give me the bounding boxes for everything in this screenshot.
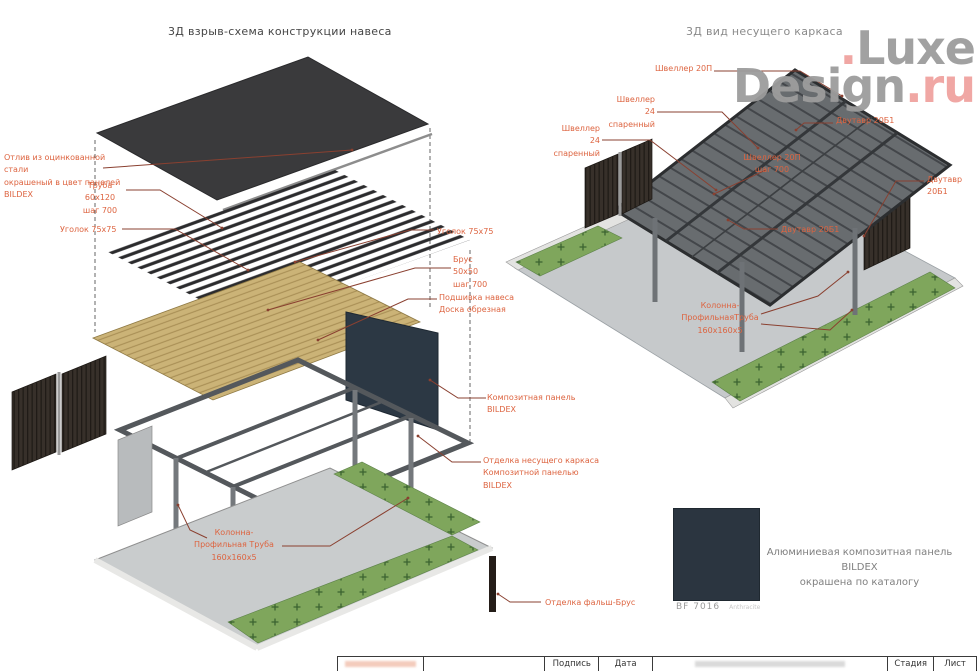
label-shveller-24-a: Швеллер 24 спаренный [605,94,655,131]
swatch-code-value: BF 7016 [676,602,720,612]
frame-view [506,70,963,408]
label-kolonna: Колонна- Профильная Труба 160x160x5 [186,527,282,564]
label-podshivka: Подшивка навеса Доска обрезная [439,292,514,317]
label-shveller-20p: Швеллер 20П [655,63,712,75]
label-falsh-brus: Отделка фальш-Брус [545,597,635,609]
label-kolonna-2: Колонна- ПрофильнаяТруба 160x160x5 [678,300,762,337]
titleblock-date-cell: Дата [599,657,653,671]
composite-panel [346,312,438,430]
label-brus: Брус 50x50 шаг 700 [453,254,487,291]
label-truba: Труба 60x120 шаг 700 [72,180,128,217]
logo-word2: Design [733,59,905,113]
titleblock-signature-cell: Подпись [545,657,599,671]
label-dvutavr-2: Двутавр 20Б1 [927,174,977,199]
label-dvutavr-3: Двутавр 20Б1 [781,224,839,236]
roof-panel [97,57,428,200]
left-view-title: 3Д взрыв-схема конструкции навеса [168,25,392,38]
logo-suffix: .ru [905,59,975,113]
luxedesign-logo: .Luxe Design.ru [733,30,975,105]
titleblock-stage-cell: Стадия [888,657,934,671]
falsh-brus-post [489,556,496,612]
swatch-color [673,508,760,601]
illegible-gray-text [695,661,845,667]
title-block: Подпись Дата Стадия Лист [337,656,977,671]
label-kompozit: Композитная панель BILDEX [487,392,575,417]
swatch-code: BF 7016Anthracite [676,602,760,612]
titleblock-revision-cell [338,657,424,671]
label-shveller-24-b: Швеллер 24 спаренный [550,123,600,160]
label-dvutavr-1: Двутавр 20Б1 [836,115,894,127]
swatch-code-note: Anthracite [729,604,760,611]
swatch-description: Алюминиевая композитная панель BILDEX ок… [752,545,967,590]
label-ugolok-left: Уголок 75x75 [60,224,116,236]
illegible-orange-text [345,661,416,667]
label-otdelka: Отделка несущего каркаса Композитной пан… [483,455,599,492]
drawing-sheet: 3Д взрыв-схема конструкции навеса 3Д вид… [0,0,977,671]
titleblock-project-cell [653,657,888,671]
titleblock-sheet-cell: Лист [934,657,976,671]
label-shveller-shag: Швеллер 20П шаг 700 [742,152,802,177]
label-ugolok-right: Уголок 75x75 [437,226,493,238]
fence-panels [12,356,152,526]
titleblock-empty-cell [424,657,546,671]
